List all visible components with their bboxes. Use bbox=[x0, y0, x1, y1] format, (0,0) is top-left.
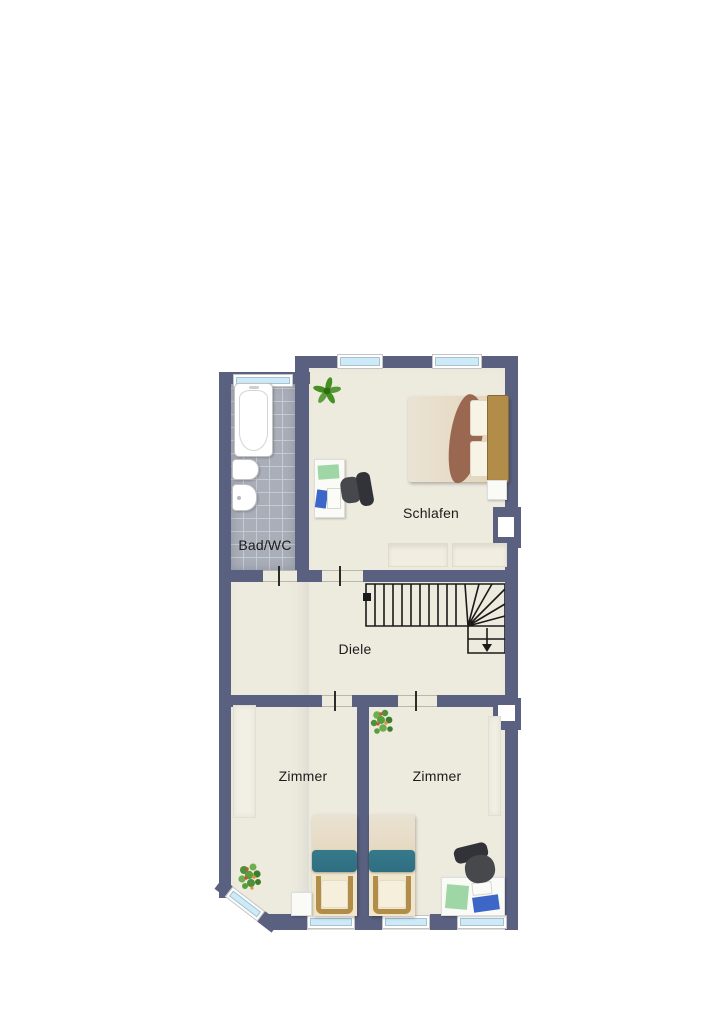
wall-bottom-d bbox=[507, 914, 518, 930]
wall-left-exterior bbox=[219, 372, 231, 898]
nightstand bbox=[291, 892, 312, 916]
toilet bbox=[232, 484, 257, 511]
nightstand bbox=[487, 480, 507, 500]
room-label-bath: Bad/WC bbox=[238, 537, 291, 553]
room-label-hall: Diele bbox=[339, 641, 372, 657]
headboard bbox=[487, 395, 509, 483]
closet-left-room bbox=[233, 705, 256, 818]
door-opening-bath bbox=[263, 570, 297, 582]
wall-hall-top-c bbox=[363, 570, 518, 582]
wall-hall-top-b bbox=[297, 570, 322, 582]
window-bottom-center bbox=[382, 915, 430, 929]
room-label-bedroom: Schlafen bbox=[403, 505, 459, 521]
double-bed bbox=[408, 396, 509, 482]
window-glass bbox=[310, 918, 352, 926]
bed-frame bbox=[316, 876, 353, 914]
staircase bbox=[360, 578, 510, 658]
door-opening-room-left bbox=[322, 695, 352, 707]
wall-rooms-top-b bbox=[352, 695, 398, 707]
wall-bottom-c bbox=[430, 914, 457, 930]
paper-blue bbox=[472, 894, 500, 912]
window-glass bbox=[435, 357, 479, 366]
wall-bath-right bbox=[295, 356, 309, 582]
bed-blanket-band bbox=[369, 850, 415, 872]
plant-icon bbox=[236, 861, 263, 891]
plant-icon bbox=[312, 377, 342, 405]
wall-hall-top-a bbox=[219, 570, 263, 582]
office-chair-right-room bbox=[452, 845, 498, 887]
door-tick-bath bbox=[278, 566, 280, 586]
room-label-room-right: Zimmer bbox=[413, 768, 462, 784]
stair-arrow-head bbox=[482, 644, 492, 652]
bathtub bbox=[234, 383, 273, 457]
sideboard-right bbox=[452, 543, 507, 567]
desk-pad bbox=[445, 884, 469, 910]
window-glass bbox=[460, 918, 504, 926]
window-bedroom-1 bbox=[337, 354, 383, 369]
window-bedroom-2 bbox=[432, 354, 482, 369]
desk-pad bbox=[318, 464, 340, 479]
wall-top-exterior bbox=[295, 356, 518, 368]
bed-blanket-band bbox=[312, 850, 357, 872]
chair-back bbox=[355, 471, 375, 507]
sideboard-left bbox=[388, 543, 448, 567]
door-tick-room-right bbox=[415, 691, 417, 711]
wall-bottom-b bbox=[355, 914, 382, 930]
laptop bbox=[327, 488, 341, 509]
door-tick-room-left bbox=[334, 691, 336, 711]
wall-center-divider bbox=[357, 707, 369, 920]
bathtub-faucet bbox=[249, 386, 259, 389]
plant-icon bbox=[369, 707, 395, 738]
bed-frame bbox=[373, 876, 411, 914]
single-bed-right bbox=[369, 814, 415, 916]
stair-winders bbox=[465, 584, 505, 639]
door-tick-bedroom bbox=[339, 566, 341, 586]
door-opening-room-right bbox=[398, 695, 437, 707]
niche-right-upper-opening bbox=[498, 517, 514, 537]
window-bottom-left bbox=[307, 915, 355, 929]
washbasin bbox=[232, 459, 259, 480]
door-opening-bedroom bbox=[322, 570, 363, 582]
single-bed-left bbox=[312, 814, 357, 916]
floor-plan: Bad/WC Schlafen Diele Zimmer Zimmer bbox=[215, 348, 522, 932]
stair-start-marker bbox=[363, 593, 371, 601]
toilet-flush bbox=[237, 496, 241, 500]
stair-outline bbox=[366, 584, 505, 653]
room-label-room-left: Zimmer bbox=[279, 768, 328, 784]
office-chair bbox=[341, 470, 372, 509]
closet-right-room bbox=[488, 716, 501, 816]
page: Bad/WC Schlafen Diele Zimmer Zimmer bbox=[0, 0, 724, 1024]
bathtub-basin bbox=[239, 390, 268, 451]
stair-treads bbox=[375, 584, 456, 626]
window-glass bbox=[385, 918, 427, 926]
window-glass bbox=[340, 357, 380, 366]
window-bottom-right bbox=[457, 915, 507, 929]
